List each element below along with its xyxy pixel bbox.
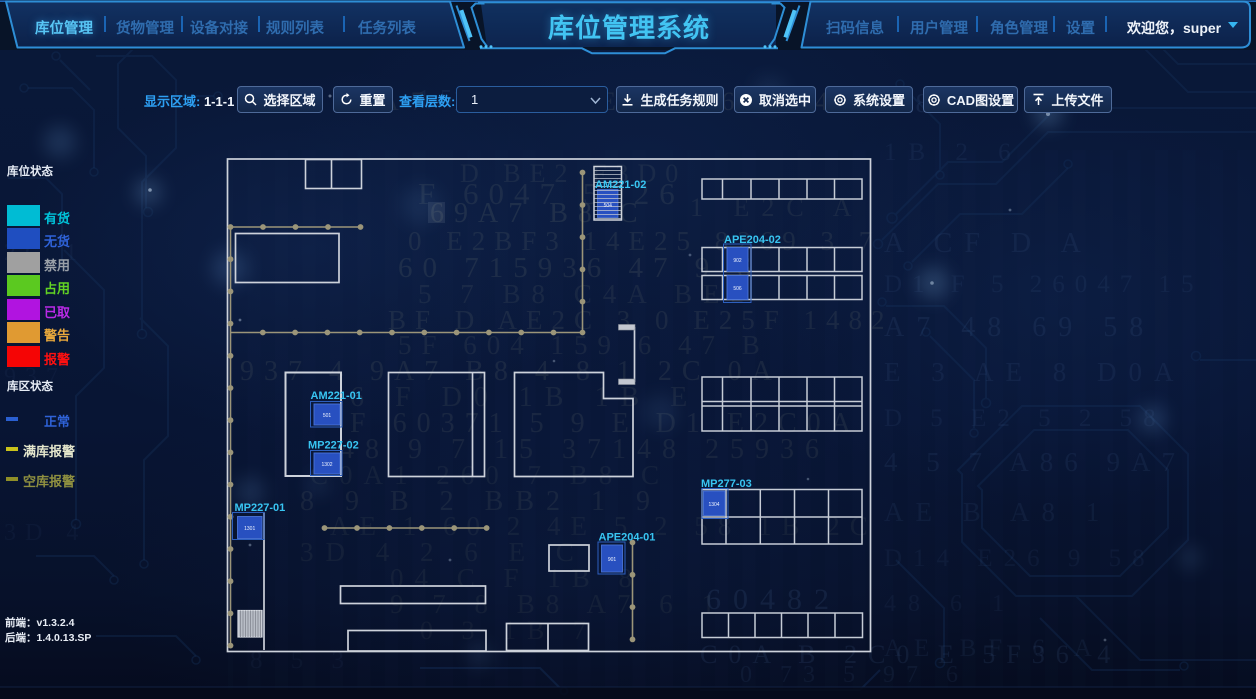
svg-text:MP227-02: MP227-02: [308, 440, 359, 452]
svg-text:506: 506: [733, 286, 742, 292]
svg-text:501: 501: [323, 413, 332, 419]
svg-text:AM221-02: AM221-02: [595, 179, 646, 191]
svg-text:902: 902: [733, 258, 742, 264]
svg-text:1302: 1302: [321, 462, 332, 468]
svg-text:MP227-01: MP227-01: [235, 502, 286, 514]
svg-text:504: 504: [604, 203, 613, 209]
svg-text:1301: 1301: [244, 526, 255, 532]
svg-text:APE204-02: APE204-02: [724, 234, 781, 246]
svg-text:901: 901: [608, 557, 617, 563]
svg-text:APE204-01: APE204-01: [599, 532, 656, 544]
svg-text:AM221-01: AM221-01: [311, 390, 362, 402]
svg-text:1304: 1304: [708, 502, 719, 508]
svg-text:MP277-03: MP277-03: [701, 478, 752, 490]
